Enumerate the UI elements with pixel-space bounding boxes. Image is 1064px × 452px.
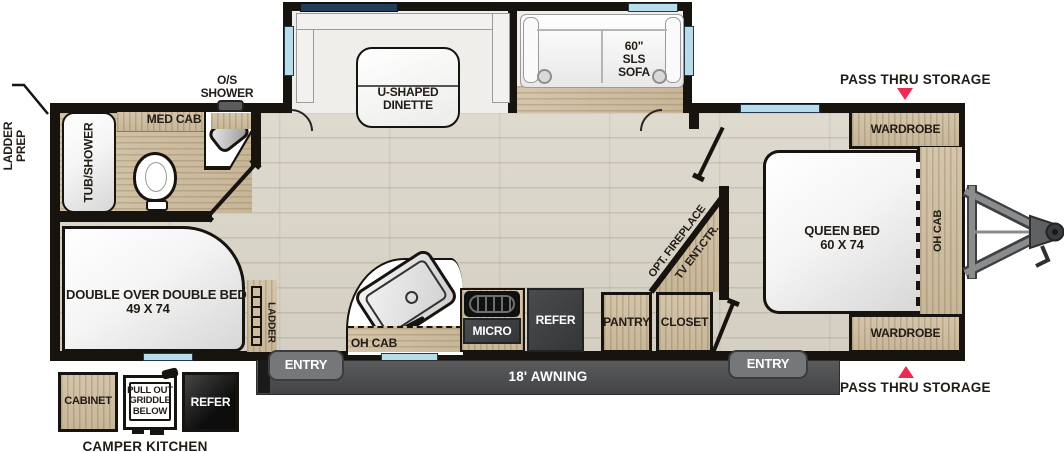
bunk-bed-label: DOUBLE OVER DOUBLE BEDS49 X 74 — [66, 288, 230, 316]
micro-label: MICRO — [473, 325, 512, 338]
camper-kitchen-cabinet: CABINET — [58, 372, 118, 432]
camper-kitchen-title: CAMPER KITCHEN — [80, 440, 210, 452]
sofa-label: 60"SLSSOFA — [604, 40, 664, 79]
pass-thru-top-arrow — [897, 88, 913, 100]
wardrobe-bottom-label: WARDROBE — [871, 327, 941, 340]
awning-label: 18' AWNING — [509, 370, 588, 385]
closet: CLOSET — [656, 292, 713, 353]
camper-refer-label: REFER — [191, 396, 231, 409]
refer-label: REFER — [536, 314, 576, 327]
window-bedroom-top — [740, 104, 820, 113]
toilet-icon — [133, 152, 177, 202]
ladder-prep-pointer — [8, 78, 54, 118]
cupholder-icon — [537, 69, 552, 84]
window-slideout-left — [284, 26, 294, 76]
queen-bed-label: QUEEN BED60 X 74 — [768, 224, 916, 252]
entry-door-rear: ENTRY — [268, 350, 344, 381]
ladder-label: LADDER — [265, 292, 276, 352]
dinette-bench-right — [492, 13, 510, 103]
hitch-icon — [962, 178, 1064, 286]
pass-thru-bottom-arrow — [898, 366, 914, 378]
tv-wall-right — [719, 186, 729, 300]
griddle-handle-icon — [161, 367, 179, 380]
pantry-label: PANTRY — [603, 316, 650, 329]
kitchen-oh-cab-label: OH CAB — [350, 337, 398, 350]
camper-griddle-label: PULL OUT GRIDDLE BELOW — [127, 386, 173, 417]
bathroom-bottom-wall — [50, 211, 212, 222]
rv-floorplan: U-SHAPEDDINETTE 60"SLSSOFA TUB/SHOWER ME… — [0, 0, 1064, 452]
outside-shower-icon — [217, 100, 244, 112]
camper-refer: REFER — [182, 372, 239, 432]
closet-label: CLOSET — [661, 316, 708, 329]
wardrobe-top: WARDROBE — [849, 110, 962, 149]
wall-rear-left — [50, 103, 60, 361]
dinette-bench-back — [296, 13, 510, 30]
window-bunk-bottom — [143, 353, 193, 361]
wardrobe-top-label: WARDROBE — [871, 123, 941, 136]
tub-shower-label: TUB/SHOWER — [83, 107, 96, 217]
camper-cabinet-label: CABINET — [64, 396, 112, 408]
pass-thru-bottom-label: PASS THRU STORAGE — [840, 381, 970, 396]
window-slideout-top-left — [300, 3, 398, 12]
outside-shower-backsplash — [211, 113, 251, 129]
door-arc-icon — [290, 109, 314, 133]
microwave: MICRO — [463, 318, 521, 344]
refrigerator: REFER — [527, 288, 584, 352]
ladder-icon — [251, 286, 262, 346]
window-slideout-right — [684, 26, 694, 76]
window-slideout-top-right — [628, 3, 678, 12]
entry-door-front: ENTRY — [728, 350, 808, 379]
toilet-base — [146, 200, 168, 211]
queen-bed-dashed-edge — [916, 153, 920, 311]
stove-icon — [464, 291, 520, 317]
camper-griddle: PULL OUT GRIDDLE BELOW — [123, 375, 177, 430]
med-cab-label: MED CAB — [144, 113, 204, 126]
pantry: PANTRY — [601, 292, 652, 353]
dinette-label: U-SHAPEDDINETTE — [358, 86, 458, 112]
outside-shower-label: O/SSHOWER — [192, 74, 262, 100]
wardrobe-bottom: WARDROBE — [849, 314, 962, 353]
bedroom-oh-cab-label: OH CAB — [933, 186, 945, 276]
pass-thru-top-label: PASS THRU STORAGE — [840, 73, 970, 88]
door-arc-icon — [639, 109, 663, 133]
bedroom-wall-stub — [689, 103, 699, 129]
